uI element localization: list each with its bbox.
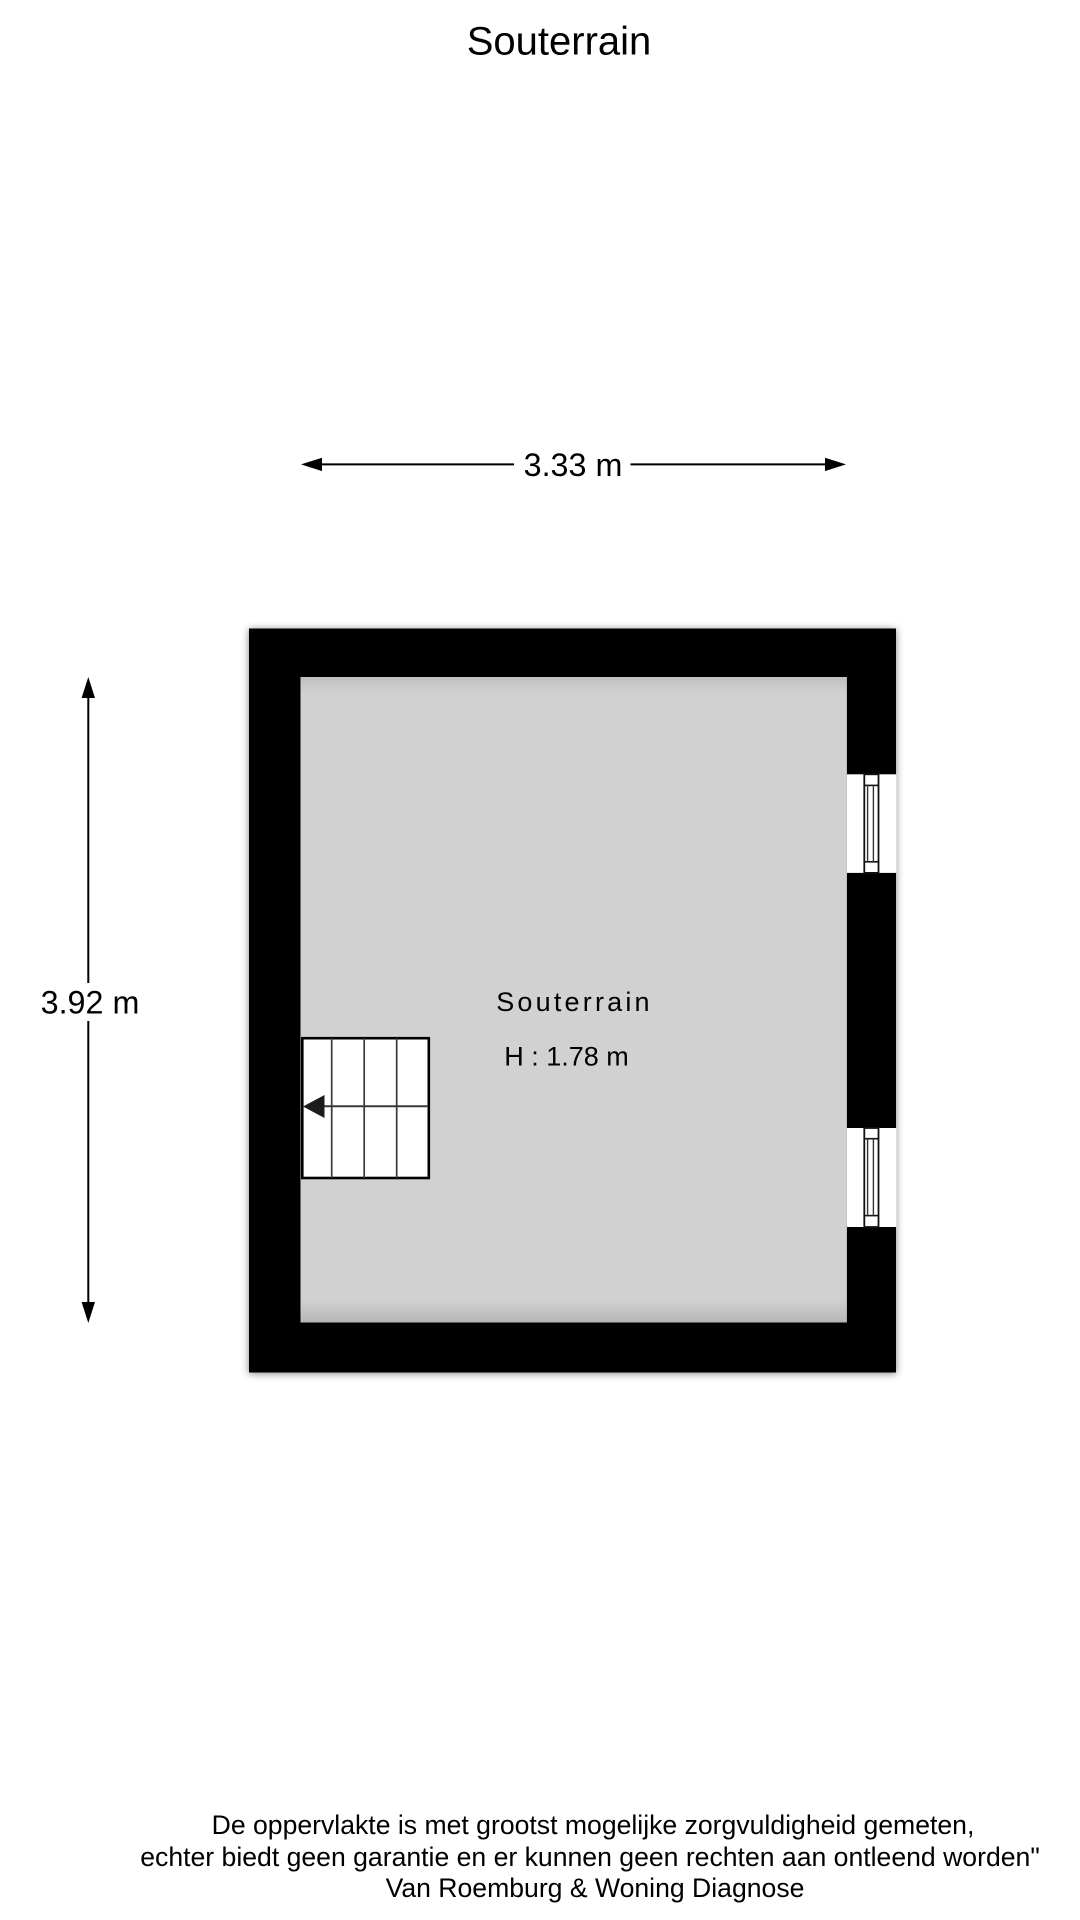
svg-text:echter biedt geen garantie en: echter biedt geen garantie en er kunnen …	[140, 1842, 1040, 1872]
svg-text:3.33 m: 3.33 m	[524, 447, 623, 483]
svg-text:H : 1.78 m: H : 1.78 m	[504, 1042, 629, 1072]
svg-text:Van Roemburg & Woning Diagnose: Van Roemburg & Woning Diagnose	[386, 1873, 805, 1903]
svg-text:De oppervlakte is met grootst: De oppervlakte is met grootst mogelijke …	[212, 1810, 975, 1840]
svg-text:Souterrain: Souterrain	[467, 20, 652, 64]
svg-text:Souterrain: Souterrain	[496, 987, 653, 1017]
svg-text:3.92 m: 3.92 m	[41, 985, 140, 1021]
